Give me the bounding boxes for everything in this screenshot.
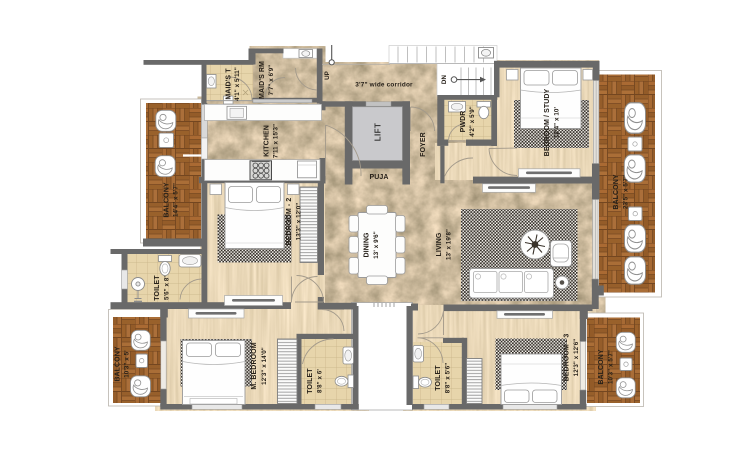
- svg-text:TOILET: TOILET: [307, 368, 314, 394]
- svg-text:12'3" x 14'0": 12'3" x 14'0": [261, 347, 268, 385]
- svg-text:13'3" x 12'0": 13'3" x 12'0": [296, 203, 303, 241]
- svg-text:BEDROOM - 3: BEDROOM - 3: [564, 334, 571, 382]
- svg-text:LIVING: LIVING: [436, 232, 443, 256]
- svg-text:7'11 x 15'3": 7'11 x 15'3": [273, 124, 280, 158]
- svg-text:13' x 19'8": 13' x 19'8": [446, 229, 453, 260]
- svg-text:5'6" x 8': 5'6" x 8': [164, 276, 171, 300]
- svg-text:10'3" x 5'7": 10'3" x 5'7": [608, 350, 615, 384]
- svg-text:MAID'S RM: MAID'S RM: [259, 61, 266, 99]
- svg-text:13' x 9'6": 13' x 9'6": [373, 231, 380, 259]
- svg-text:M. BEDROOM: M. BEDROOM: [251, 342, 258, 389]
- svg-text:10'3" x 5': 10'3" x 5': [124, 350, 131, 378]
- svg-text:BALCONY: BALCONY: [115, 346, 122, 382]
- svg-text:UP: UP: [324, 71, 331, 80]
- svg-text:12'4" x 10': 12'4" x 10': [554, 107, 561, 138]
- svg-text:FOYER: FOYER: [420, 132, 427, 157]
- svg-text:BALCONY: BALCONY: [164, 182, 171, 218]
- svg-text:12'3" x 12'6": 12'3" x 12'6": [573, 339, 580, 377]
- svg-text:BEDROOM / STUDY: BEDROOM / STUDY: [544, 88, 551, 156]
- svg-text:8'8" x 5'6": 8'8" x 5'6": [445, 363, 452, 394]
- svg-text:BALCONY: BALCONY: [598, 349, 605, 385]
- svg-text:7'7" x 6'9": 7'7" x 6'9": [268, 65, 275, 96]
- svg-text:KITCHEN: KITCHEN: [264, 125, 271, 157]
- svg-text:8'8" x 6': 8'8" x 6': [317, 369, 324, 393]
- svg-text:MAID'S T: MAID'S T: [226, 68, 233, 100]
- svg-text:BALCONY: BALCONY: [613, 174, 620, 210]
- svg-text:3'7" wide corridor: 3'7" wide corridor: [355, 82, 413, 89]
- svg-text:23'5" x 5'7": 23'5" x 5'7": [623, 175, 630, 209]
- svg-text:PUJA: PUJA: [369, 174, 388, 181]
- svg-text:14'4" x 5'7": 14'4" x 5'7": [173, 183, 180, 217]
- svg-text:DN: DN: [441, 75, 448, 85]
- svg-text:4'1" x 5'11": 4'1" x 5'11": [234, 67, 241, 101]
- svg-text:TOILET: TOILET: [435, 365, 442, 391]
- svg-text:BEDROOM - 2: BEDROOM - 2: [286, 198, 293, 246]
- svg-text:TOILET: TOILET: [154, 275, 161, 301]
- svg-text:4'2" x 5'9": 4'2" x 5'9": [469, 106, 476, 137]
- svg-text:DINING: DINING: [364, 232, 371, 258]
- svg-text:PWDR: PWDR: [460, 111, 467, 133]
- svg-text:LIFT: LIFT: [374, 123, 383, 141]
